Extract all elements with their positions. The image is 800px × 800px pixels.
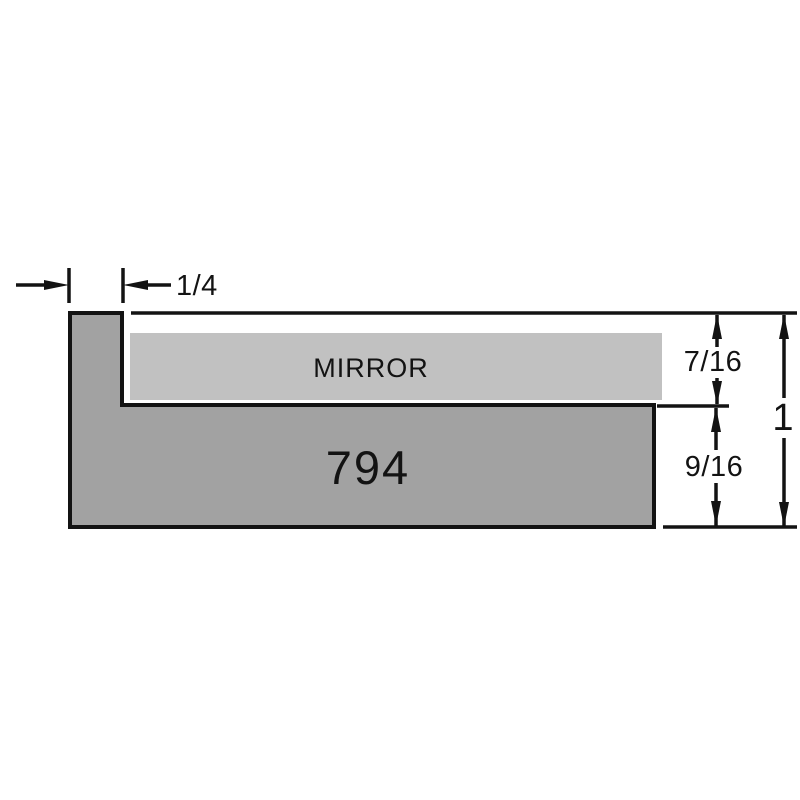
dimension-lip-width: 1/4 [16,268,218,303]
dimension-base-height: 9/16 [685,407,743,526]
base-height-value: 9/16 [685,451,743,483]
profile-number-label: 794 [326,441,410,494]
lip-width-left-arrowhead-icon [123,280,148,290]
lip-width-value: 1/4 [176,270,218,302]
overall-height-value: 1 [772,397,793,439]
lip-width-right-arrowhead-icon [44,280,69,290]
cross-section-drawing: MIRROR 794 1/4 7/16 [0,0,800,800]
overall-height-down-arrowhead-icon [779,502,789,527]
mirror-label: MIRROR [313,353,429,383]
moulding-profile-diagram: MIRROR 794 1/4 7/16 [0,0,800,800]
base-height-down-arrowhead-icon [711,501,721,526]
dimension-overall-height: 1 [772,314,793,527]
rabbet-depth-down-arrowhead-icon [712,381,722,405]
rabbet-depth-value: 7/16 [684,346,742,378]
dimension-rabbet-depth: 7/16 [684,314,742,405]
profile-shape-layer [70,313,662,527]
